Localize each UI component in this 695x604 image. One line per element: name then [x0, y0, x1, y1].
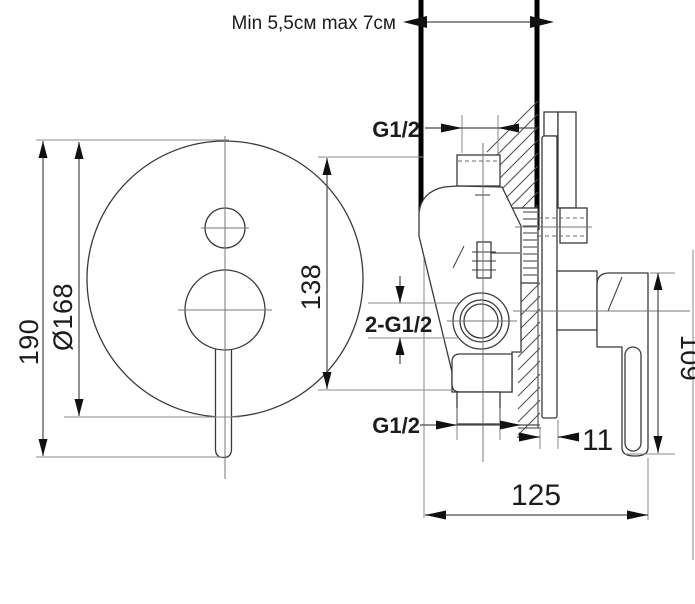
bottom-thread-label: G1/2 — [372, 413, 420, 438]
plate-offset-label: 11 — [582, 424, 613, 457]
inlet-thread-label: 2-G1/2 — [365, 312, 432, 337]
upper-bracket — [558, 112, 576, 208]
top-thread-label: G1/2 — [372, 117, 420, 142]
ports-span-label: 138 — [296, 264, 326, 311]
mounting-fitting — [560, 208, 587, 243]
handle-hub — [557, 271, 597, 330]
plate-diameter-label: Ø168 — [48, 283, 78, 351]
total-height-label: 190 — [14, 319, 44, 366]
wall-note-label: Min 5,5см max 7см — [232, 13, 396, 34]
valve-foot — [452, 354, 512, 392]
handle-length-label: 109 — [675, 335, 695, 382]
shower-mixer-technical-drawing: 190 Ø168 138 — [0, 0, 695, 604]
lever-handle-front — [216, 338, 232, 458]
plate-top-step — [544, 112, 558, 136]
depth-label: 125 — [511, 479, 561, 512]
escutcheon-plate-side — [542, 136, 557, 418]
bottom-outlet-port — [457, 392, 500, 424]
top-outlet-port — [457, 155, 500, 186]
technical-drawing-page: 190 Ø168 138 — [0, 0, 695, 604]
